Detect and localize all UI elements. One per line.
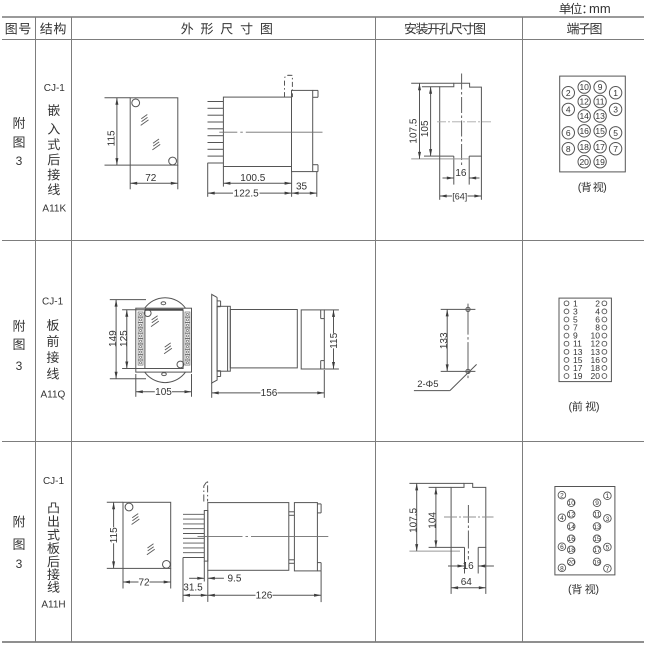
svg-text:18: 18 <box>568 547 576 554</box>
svg-text:9: 9 <box>598 82 603 92</box>
svg-text:115: 115 <box>329 332 340 348</box>
svg-text:17: 17 <box>595 142 605 152</box>
svg-text:13: 13 <box>595 111 605 121</box>
svg-text:3: 3 <box>606 516 610 523</box>
svg-text:9.5: 9.5 <box>228 574 242 585</box>
svg-text:6: 6 <box>566 128 571 138</box>
svg-text:[64]: [64] <box>452 191 467 201</box>
svg-text:10: 10 <box>568 500 576 507</box>
svg-text:CJ-1: CJ-1 <box>44 83 66 94</box>
svg-text:CJ-1: CJ-1 <box>42 296 64 307</box>
svg-text:16: 16 <box>463 561 475 572</box>
svg-text:7: 7 <box>606 566 610 573</box>
svg-text:A11H: A11H <box>41 600 65 611</box>
svg-text:12: 12 <box>579 97 589 107</box>
svg-text:8: 8 <box>560 565 564 572</box>
svg-text:11: 11 <box>594 512 601 519</box>
svg-text:A11Q: A11Q <box>40 390 65 401</box>
svg-text:1: 1 <box>613 88 618 98</box>
svg-text:156: 156 <box>261 388 278 399</box>
svg-text:4: 4 <box>566 104 571 114</box>
svg-text:14: 14 <box>568 524 576 531</box>
svg-text:2: 2 <box>566 88 571 98</box>
svg-text:133: 133 <box>439 332 450 349</box>
svg-text:1: 1 <box>606 493 610 500</box>
svg-text:16: 16 <box>455 168 467 179</box>
svg-text:35: 35 <box>296 181 308 192</box>
svg-text:122.5: 122.5 <box>234 189 259 200</box>
svg-text:17: 17 <box>593 547 601 554</box>
svg-text:20: 20 <box>579 157 589 167</box>
svg-text:15: 15 <box>595 126 605 136</box>
svg-text:31.5: 31.5 <box>183 583 203 594</box>
svg-text:9: 9 <box>595 500 599 507</box>
svg-text:3: 3 <box>16 557 23 571</box>
svg-text:16: 16 <box>579 126 589 136</box>
svg-text:107.5: 107.5 <box>409 507 420 532</box>
svg-text:64: 64 <box>461 577 473 588</box>
svg-text:115: 115 <box>106 130 117 146</box>
svg-text:2: 2 <box>560 493 564 500</box>
svg-text:3: 3 <box>16 359 23 373</box>
svg-text:72: 72 <box>138 577 150 588</box>
svg-text:(: ( <box>568 584 572 596</box>
svg-text:100.5: 100.5 <box>240 173 265 184</box>
svg-text:19: 19 <box>595 157 605 167</box>
svg-text:13: 13 <box>593 524 601 531</box>
svg-text:19: 19 <box>573 371 583 381</box>
svg-text:115: 115 <box>109 527 120 543</box>
svg-text:105: 105 <box>420 120 431 137</box>
svg-text:6: 6 <box>560 544 564 551</box>
svg-text:149: 149 <box>108 330 119 347</box>
svg-text:3: 3 <box>613 104 618 114</box>
svg-text:20: 20 <box>591 371 601 381</box>
svg-text:(: ( <box>578 182 582 194</box>
svg-text:): ) <box>595 584 599 596</box>
svg-text:12: 12 <box>568 512 576 519</box>
svg-text:15: 15 <box>593 536 601 543</box>
svg-text:125: 125 <box>119 330 130 347</box>
svg-text:105: 105 <box>155 387 172 398</box>
svg-text:14: 14 <box>579 111 589 121</box>
svg-text:16: 16 <box>568 536 576 543</box>
svg-text:2-Φ5: 2-Φ5 <box>417 379 438 390</box>
svg-text:4: 4 <box>560 515 564 522</box>
svg-text:7: 7 <box>613 144 618 154</box>
svg-text:8: 8 <box>566 144 571 154</box>
svg-text:5: 5 <box>606 544 610 551</box>
svg-text:19: 19 <box>593 559 601 566</box>
svg-text:18: 18 <box>579 142 589 152</box>
svg-text:10: 10 <box>579 82 589 92</box>
svg-text:107.5: 107.5 <box>409 118 420 143</box>
svg-text:): ) <box>603 182 607 194</box>
svg-text:5: 5 <box>613 128 618 138</box>
svg-text:): ) <box>596 401 600 413</box>
svg-text:mm: mm <box>589 1 611 16</box>
svg-text:(: ( <box>568 401 572 413</box>
svg-text:20: 20 <box>568 559 576 566</box>
svg-text:A11K: A11K <box>42 203 66 214</box>
svg-text:11: 11 <box>596 97 605 107</box>
svg-text:CJ-1: CJ-1 <box>43 476 65 487</box>
svg-text:72: 72 <box>145 173 157 184</box>
svg-text:3: 3 <box>16 154 23 168</box>
svg-text:126: 126 <box>256 591 273 602</box>
svg-text:104: 104 <box>428 512 439 529</box>
